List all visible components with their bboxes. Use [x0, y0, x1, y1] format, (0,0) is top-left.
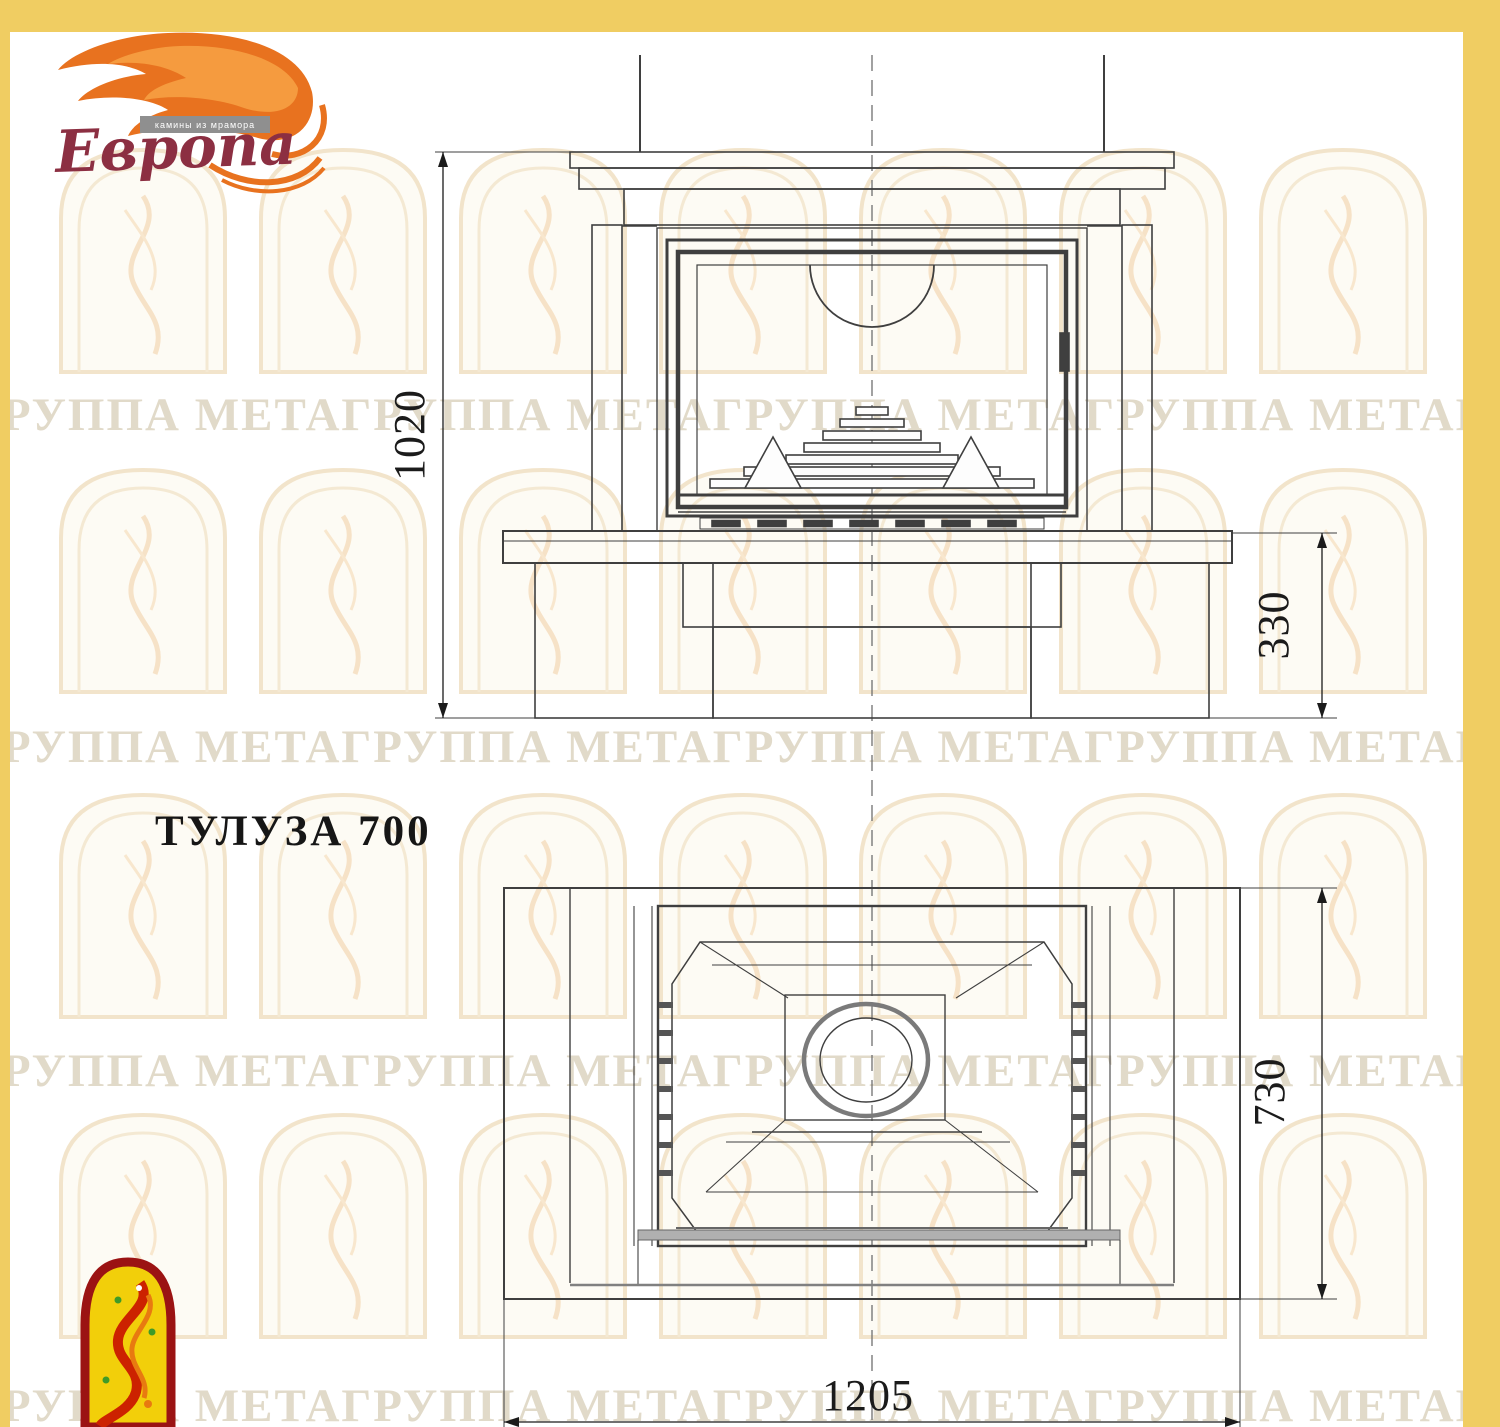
arch-motif — [861, 150, 1025, 372]
brand-tagline-text: камины из мрамора — [155, 120, 255, 130]
watermark-text-row: ГРУППА МЕТАГРУППА МЕТАГРУППА МЕТАГРУППА … — [0, 721, 1500, 773]
watermark-text-row: ГРУППА МЕТАГРУППА МЕТАГРУППА МЕТАГРУППА … — [0, 1380, 1500, 1427]
arch-motif — [861, 1115, 1025, 1337]
arch-motif — [461, 470, 625, 692]
page-title: ТУЛУЗА 700 — [155, 808, 432, 855]
arch-motif — [1061, 470, 1225, 692]
dim-label-1020: 1020 — [385, 389, 434, 481]
arch-motif — [661, 470, 825, 692]
brand-tagline-bar: камины из мрамора — [140, 116, 270, 133]
dim-label-330: 330 — [1249, 591, 1298, 660]
arch-motif — [661, 150, 825, 372]
arch-motif — [1261, 150, 1425, 372]
arrow-up-icon — [438, 152, 448, 167]
frame-left — [0, 0, 10, 1427]
arrow-down-icon — [1317, 703, 1327, 718]
drawing-sheet: ГРУППА МЕТАГРУППА МЕТАГРУППА МЕТАГРУППА … — [0, 0, 1500, 1427]
frame-right — [1463, 0, 1500, 1427]
arch-motif — [1061, 150, 1225, 372]
arch-motif — [461, 795, 625, 1017]
arrow-down-icon — [438, 703, 448, 718]
firebird-emblem — [85, 1262, 171, 1427]
technical-drawing-canvas: ГРУППА МЕТАГРУППА МЕТАГРУППА МЕТАГРУППА … — [0, 0, 1500, 1427]
arch-motif — [261, 150, 425, 372]
arch-motif — [1261, 795, 1425, 1017]
arch-motif — [261, 470, 425, 692]
door-handle-icon — [1060, 333, 1069, 371]
arch-motif — [861, 470, 1025, 692]
arch-motif — [661, 1115, 825, 1337]
arch-motif — [461, 1115, 625, 1337]
arch-motif — [261, 1115, 425, 1337]
arch-motif — [61, 470, 225, 692]
arch-motif — [461, 150, 625, 372]
dim-label-730: 730 — [1245, 1058, 1294, 1127]
dim-label-1205: 1205 — [822, 1371, 914, 1420]
watermark-text-row: ГРУППА МЕТАГРУППА МЕТАГРУППА МЕТАГРУППА … — [0, 389, 1500, 441]
frame-top — [0, 0, 1500, 32]
arch-motif — [1261, 1115, 1425, 1337]
brand-logo: Европа камины из мрамора — [52, 33, 324, 192]
